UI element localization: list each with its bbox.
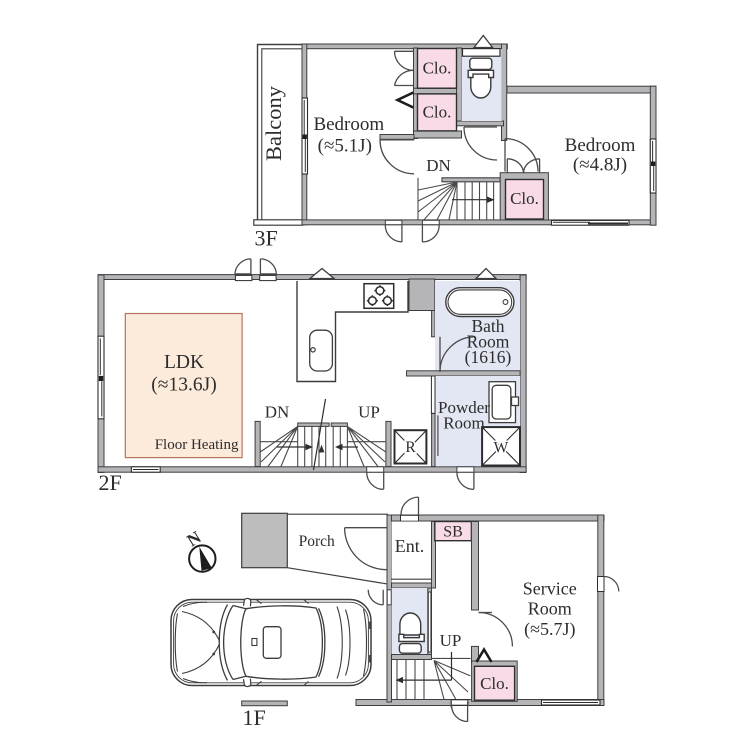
svg-text:DN: DN <box>426 156 451 175</box>
svg-text:Porch: Porch <box>299 533 335 550</box>
svg-text:SB: SB <box>443 524 463 541</box>
svg-text:Balcony: Balcony <box>261 85 286 161</box>
svg-text:Clo.: Clo. <box>423 59 452 78</box>
svg-text:Room: Room <box>443 414 485 433</box>
svg-text:LDK: LDK <box>164 352 204 373</box>
svg-text:DN: DN <box>265 403 290 422</box>
svg-text:Clo.: Clo. <box>510 189 539 208</box>
svg-text:3F: 3F <box>255 226 278 251</box>
svg-text:1F: 1F <box>243 705 266 730</box>
svg-text:UP: UP <box>358 403 380 422</box>
svg-text:(1616): (1616) <box>465 347 512 367</box>
svg-text:2F: 2F <box>99 470 122 495</box>
svg-text:Ent.: Ent. <box>395 536 425 556</box>
svg-text:Clo.: Clo. <box>423 103 452 122</box>
svg-text:UP: UP <box>440 631 462 650</box>
svg-text:(≈4.8J): (≈4.8J) <box>573 155 627 176</box>
svg-text:R: R <box>405 439 416 456</box>
svg-text:W: W <box>494 440 509 457</box>
svg-text:(≈13.6J): (≈13.6J) <box>151 375 216 396</box>
svg-text:Clo.: Clo. <box>480 674 509 693</box>
svg-text:Bedroom: Bedroom <box>313 114 384 135</box>
svg-text:Bedroom: Bedroom <box>565 135 636 156</box>
svg-text:Room: Room <box>528 599 572 619</box>
svg-text:Floor Heating: Floor Heating <box>155 437 239 453</box>
svg-text:Service: Service <box>523 579 577 599</box>
svg-text:(≈5.1J): (≈5.1J) <box>318 136 372 157</box>
svg-text:(≈5.7J): (≈5.7J) <box>524 619 575 640</box>
svg-text:N: N <box>183 526 205 550</box>
